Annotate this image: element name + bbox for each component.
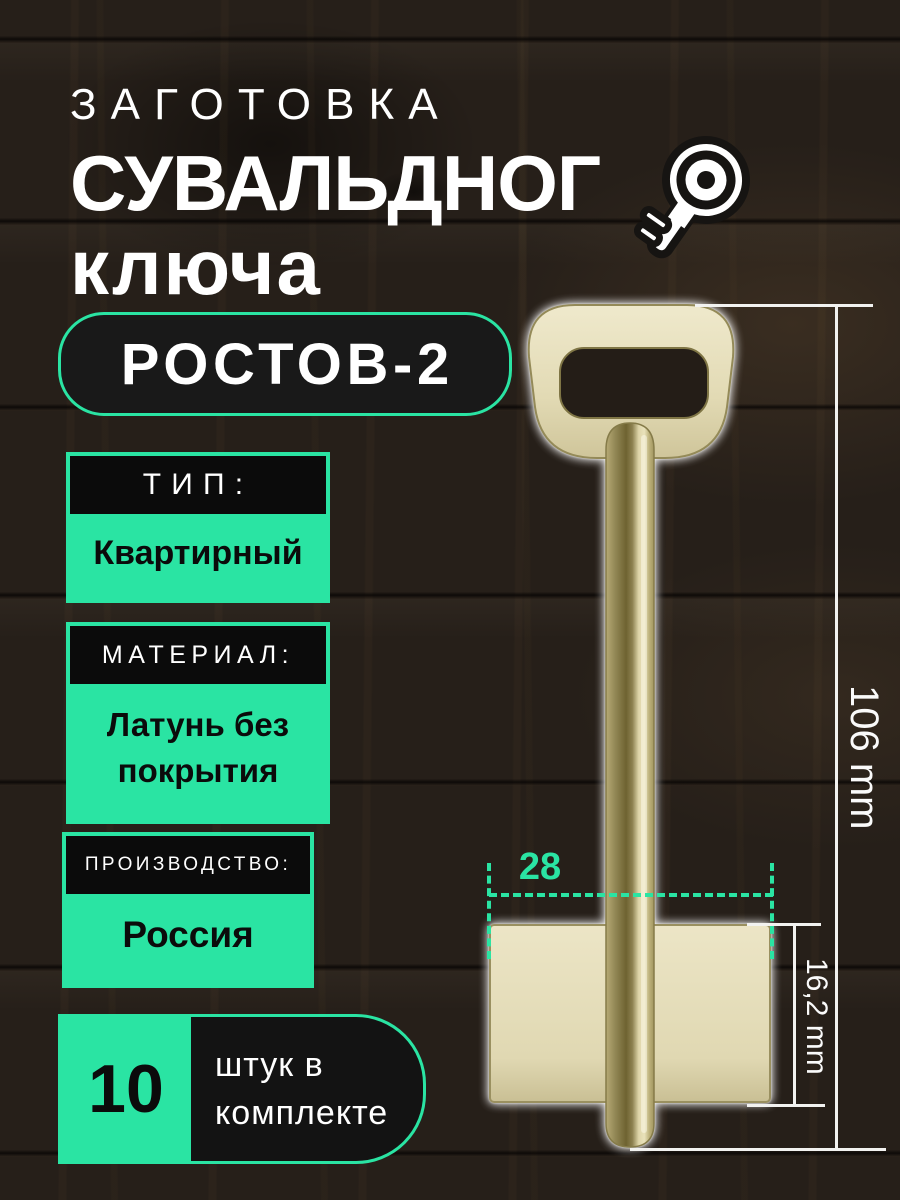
plank-seam	[0, 36, 900, 43]
spec-material-value: Латунь без покрытия	[70, 684, 326, 820]
key-icon	[634, 134, 768, 274]
quantity-number: 10	[61, 1017, 191, 1161]
spec-material-header: МАТЕРИАЛ:	[70, 626, 326, 684]
dimension-blade-width-label: 28	[500, 846, 580, 889]
dimension-blade-width-tick-left	[487, 863, 491, 959]
model-badge: РОСТОВ-2	[58, 312, 512, 416]
spec-block-material: МАТЕРИАЛ: Латунь без покрытия	[66, 622, 330, 824]
dimension-bit-height-tick-bottom	[747, 1104, 825, 1107]
dimension-length-line	[835, 305, 838, 1151]
spec-type-header: ТИП:	[70, 456, 326, 514]
headline-line1: ЗАГОТОВКА	[70, 80, 452, 130]
dimension-length-tick-bottom	[630, 1148, 886, 1151]
quantity-label-line1: штук в	[215, 1041, 388, 1089]
dimension-blade-width-tick-right	[770, 863, 774, 959]
headline-line2: СУВАЛЬДНОГ	[70, 138, 600, 229]
quantity-badge: 10 штук в комплекте	[58, 1014, 426, 1164]
spec-origin-header: ПРОИЗВОДСТВО:	[66, 836, 310, 894]
dimension-bit-height-label: 16,2 mm	[799, 930, 833, 1102]
dimension-length-label: 106 mm	[841, 645, 886, 870]
spec-type-value: Квартирный	[70, 514, 326, 599]
dimension-bit-height-tick-top	[747, 923, 821, 926]
model-badge-label: РОСТОВ-2	[116, 331, 454, 398]
dimension-blade-width-line	[489, 893, 773, 897]
product-card: ЗАГОТОВКА СУВАЛЬДНОГ ключа РОСТОВ-2 ТИП:…	[0, 0, 900, 1200]
key-blank-photo	[455, 285, 795, 1165]
headline-line3: ключа	[70, 222, 322, 313]
spec-origin-value: Россия	[66, 894, 310, 984]
spec-block-origin: ПРОИЗВОДСТВО: Россия	[62, 832, 314, 988]
quantity-label: штук в комплекте	[191, 1017, 388, 1161]
quantity-label-line2: комплекте	[215, 1089, 388, 1137]
dimension-length-tick-top	[695, 304, 873, 307]
plank-highlight	[0, 43, 900, 83]
dimension-bit-height-line	[793, 924, 796, 1106]
spec-block-type: ТИП: Квартирный	[66, 452, 330, 603]
